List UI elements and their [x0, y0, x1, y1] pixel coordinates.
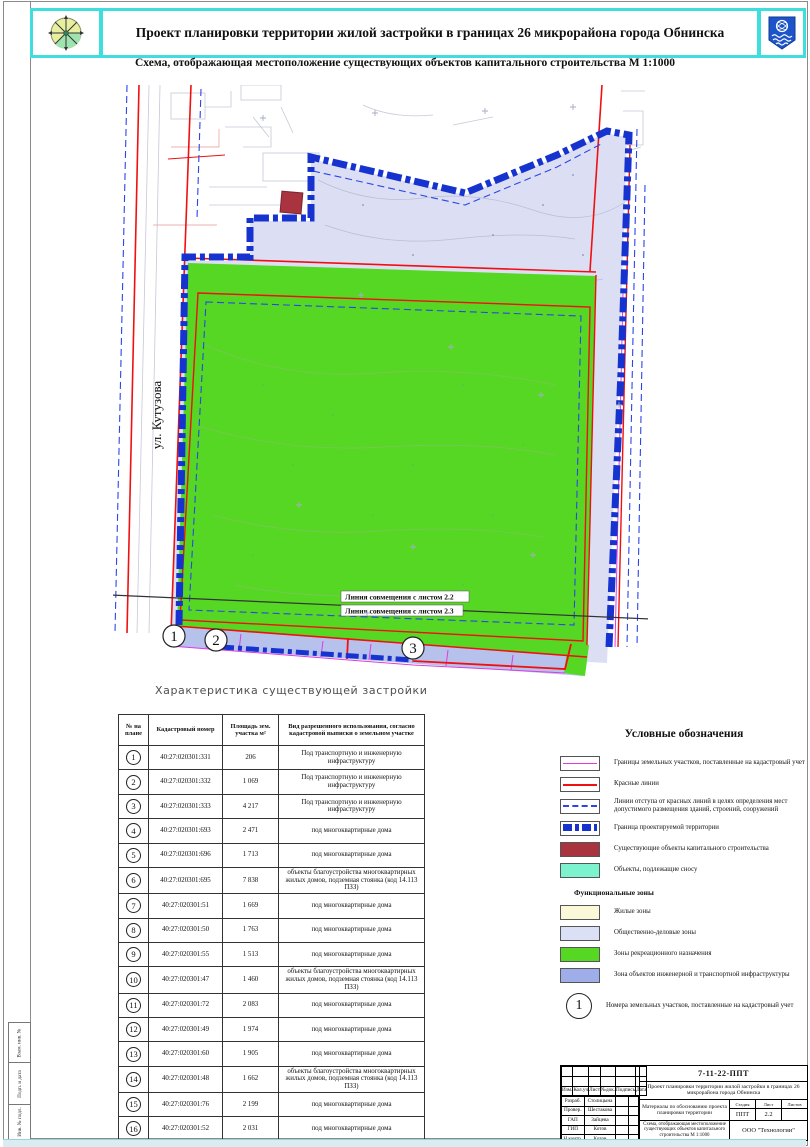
cell-area: 4 217	[223, 794, 279, 818]
legend-zone-item: Зона объектов инженерной и транспортной …	[560, 968, 808, 983]
stamp-col-podpis: Подпись	[616, 1087, 636, 1096]
company-name: ООО "Технологии"	[730, 1121, 807, 1140]
plot-number-badge: 2	[126, 775, 141, 790]
table-row: 4 40:27:020301:693 2 471 под многокварти…	[119, 819, 425, 843]
cell-number: 10	[119, 967, 149, 993]
cell-area: 1 713	[223, 843, 279, 867]
plot-number-badge: 6	[126, 873, 141, 888]
table-row: 8 40:27:020301:50 1 763 под многоквартир…	[119, 918, 425, 942]
legend-item-label: Граница проектируемой территории	[614, 824, 719, 832]
legend-item: Линии отступа от красных линий в целях о…	[560, 798, 808, 815]
table-row: 11 40:27:020301:72 2 083 под многокварти…	[119, 993, 425, 1017]
sheets-label: Листов	[782, 1100, 807, 1108]
sheets-value	[782, 1109, 807, 1119]
cell-use: под многоквартирные дома	[279, 993, 425, 1017]
cell-number: 9	[119, 942, 149, 966]
table-row: 10 40:27:020301:47 1 460 объекты благоус…	[119, 967, 425, 993]
functional-zones-heading: Функциональные зоны	[574, 888, 808, 897]
characteristics-table: № на плане Кадастровый номер Площадь зем…	[118, 714, 425, 1147]
signature-row: Провер. Шестакова	[562, 1106, 639, 1116]
plot-number-badge: 5	[126, 848, 141, 863]
legend-item-label: Линии отступа от красных линий в целях о…	[614, 798, 808, 815]
cell-cadastral: 40:27:020301:52	[149, 1117, 223, 1141]
legend-item-label: Существующие объекты капитального строит…	[614, 845, 769, 853]
cell-use: под многоквартирные дома	[279, 1092, 425, 1116]
table-row: 13 40:27:020301:60 1 905 под многокварти…	[119, 1042, 425, 1066]
role-name: Столицына	[584, 1097, 616, 1107]
role-signature	[616, 1116, 628, 1126]
cell-number: 8	[119, 918, 149, 942]
plot-number-badge: 14	[126, 1072, 141, 1087]
role-name: Котов	[584, 1125, 616, 1135]
role-date	[628, 1097, 638, 1107]
plot-number-badge: 4	[126, 823, 141, 838]
revision-grid: Изм. Кол.уч Лист №док. Подпись Дата	[561, 1066, 647, 1096]
role-signature	[616, 1106, 628, 1116]
cell-area: 2 083	[223, 993, 279, 1017]
cell-cadastral: 40:27:020301:55	[149, 942, 223, 966]
cell-number: 13	[119, 1042, 149, 1066]
cell-number: 16	[119, 1117, 149, 1141]
legend-item: Существующие объекты капитального строит…	[560, 842, 808, 857]
obninsk-emblem	[757, 11, 803, 55]
table-row: 14 40:27:020301:48 1 662 объекты благоус…	[119, 1066, 425, 1092]
stamp-col-list: Лист	[589, 1087, 601, 1096]
cell-cadastral: 40:27:020301:696	[149, 843, 223, 867]
role-signature	[616, 1097, 628, 1107]
document-number: 7-11-22-ППТ	[640, 1066, 807, 1082]
plot-number-badge: 12	[126, 1022, 141, 1037]
cell-number: 12	[119, 1017, 149, 1041]
project-name: Проект планировки территории жилой застр…	[640, 1082, 807, 1101]
scheme-name: Схема, отображающая местоположение сущес…	[640, 1121, 730, 1140]
cell-cadastral: 40:27:020301:60	[149, 1042, 223, 1066]
table-row: 7 40:27:020301:51 1 669 под многоквартир…	[119, 894, 425, 918]
legend-zone-label: Жилые зоны	[614, 908, 651, 916]
legend-item-label: Объекты, подлежащие сносу	[614, 866, 697, 874]
cell-number: 7	[119, 894, 149, 918]
col-header-area: Площадь зем. участка м²	[223, 715, 279, 746]
plot-marker-3: 3	[409, 641, 417, 657]
cell-cadastral: 40:27:020301:332	[149, 770, 223, 794]
signature-row: ГИП Котов	[562, 1125, 639, 1135]
plot-number-badge: 8	[126, 923, 141, 938]
legend-zone-swatch	[560, 968, 600, 983]
cell-cadastral: 40:27:020301:333	[149, 794, 223, 818]
cell-number: 2	[119, 770, 149, 794]
legend-swatch	[560, 756, 600, 771]
legend-title: Условные обозначения	[560, 728, 808, 740]
cell-use: Под транспортную и инженерную инфраструк…	[279, 746, 425, 770]
align-label-2: Линия совмещения с листом 2.3	[345, 607, 454, 616]
legend-number-item: 1 Номера земельных участков, поставленны…	[560, 993, 808, 1019]
drawing-sheet: Проект планировки территории жилой застр…	[0, 0, 810, 1147]
legend-item: Объекты, подлежащие сносу	[560, 863, 808, 878]
table-row: 3 40:27:020301:333 4 217 Под транспортну…	[119, 794, 425, 818]
legend-swatch	[560, 799, 600, 814]
cell-use: под многоквартирные дома	[279, 894, 425, 918]
cell-use: под многоквартирные дома	[279, 843, 425, 867]
sheet-label: Лист	[756, 1100, 782, 1108]
plot-number-badge: 3	[126, 799, 141, 814]
cell-area: 1 763	[223, 918, 279, 942]
role-signature	[616, 1125, 628, 1135]
cell-use: под многоквартирные дома	[279, 918, 425, 942]
plot-number-badge: 9	[126, 947, 141, 962]
cell-area: 2 471	[223, 819, 279, 843]
street-label: ул. Кутузова	[149, 381, 164, 450]
legend-zone-label: Зона объектов инженерной и транспортной …	[614, 971, 790, 979]
cell-area: 1 513	[223, 942, 279, 966]
cell-area: 206	[223, 746, 279, 770]
cell-cadastral: 40:27:020301:47	[149, 967, 223, 993]
stamp-col-dok: №док.	[601, 1087, 616, 1096]
cell-use: Под транспортную и инженерную инфраструк…	[279, 770, 425, 794]
legend-zone-swatch	[560, 926, 600, 941]
role-name: Зайцева	[584, 1116, 616, 1126]
table-row: 12 40:27:020301:49 1 974 под многокварти…	[119, 1017, 425, 1041]
cell-use: под многоквартирные дома	[279, 1117, 425, 1141]
cell-cadastral: 40:27:020301:51	[149, 894, 223, 918]
title-block: Изм. Кол.уч Лист №док. Подпись Дата Разр…	[560, 1065, 808, 1141]
cell-area: 1 460	[223, 967, 279, 993]
cell-use: Под транспортную и инженерную инфраструк…	[279, 794, 425, 818]
cell-number: 3	[119, 794, 149, 818]
role-label: ГИП	[562, 1125, 585, 1135]
plot-number-badge: 7	[126, 898, 141, 913]
scheme-subtitle: Схема, отображающая местоположение сущес…	[130, 57, 680, 71]
stamp-middle-row: Материалы по обоснованию проекта планиро…	[640, 1100, 807, 1120]
cell-cadastral: 40:27:020301:49	[149, 1017, 223, 1041]
role-label: ГАП	[562, 1116, 585, 1126]
table-row: 15 40:27:020301:76 2 199 под многокварти…	[119, 1092, 425, 1116]
cell-number: 6	[119, 867, 149, 893]
table-heading: Характеристика существующей застройки	[155, 684, 428, 697]
cell-use: под многоквартирные дома	[279, 1017, 425, 1041]
page-title: Проект планировки территории жилой застр…	[103, 11, 757, 55]
cell-area: 1 974	[223, 1017, 279, 1041]
side-cell-podp: Подп. и дата	[8, 1062, 31, 1106]
cell-area: 7 838	[223, 867, 279, 893]
plot-number-badge: 10	[126, 972, 141, 987]
table-row: 16 40:27:020301:52 2 031 под многокварти…	[119, 1117, 425, 1141]
site-plan-map: Линия совмещения с листом 2.2 Линия совм…	[113, 85, 648, 683]
cell-cadastral: 40:27:020301:76	[149, 1092, 223, 1116]
legend-zone-swatch	[560, 905, 600, 920]
side-label-vzam: Взам. инв. №	[17, 1028, 23, 1057]
cell-area: 1 905	[223, 1042, 279, 1066]
stamp-col-izm: Изм.	[562, 1087, 573, 1096]
table-row: 9 40:27:020301:55 1 513 под многоквартир…	[119, 942, 425, 966]
compass-logo-icon	[39, 14, 93, 52]
legend-zone-label: Общественно-деловые зоны	[614, 929, 696, 937]
plot-marker-2: 2	[212, 633, 220, 649]
cell-use: под многоквартирные дома	[279, 1042, 425, 1066]
legend-item: Граница проектируемой территории	[560, 821, 808, 836]
cell-cadastral: 40:27:020301:72	[149, 993, 223, 1017]
role-label: Разраб.	[562, 1097, 585, 1107]
legend-number-label: Номера земельных участков, поставленные …	[606, 1002, 793, 1010]
legend-swatch	[560, 842, 600, 857]
plot-number-badge: 11	[126, 998, 141, 1013]
legend-swatch	[560, 777, 600, 792]
col-header-use: Вид разрешенного использования, согласно…	[279, 715, 425, 746]
title-block-signatures: Изм. Кол.уч Лист №док. Подпись Дата Разр…	[561, 1066, 640, 1140]
stage-table: Стадия Лист Листов ППТ 2.2	[730, 1100, 807, 1119]
cell-cadastral: 40:27:020301:48	[149, 1066, 223, 1092]
cell-number: 1	[119, 746, 149, 770]
role-name: Шестакова	[584, 1106, 616, 1116]
side-cell-vzam: Взам. инв. №	[8, 1022, 31, 1064]
side-cell-inv: Инв. № подл.	[8, 1104, 31, 1140]
legend-item-label: Красные линии	[614, 780, 659, 788]
plot-number-badge: 13	[126, 1047, 141, 1062]
compass-logo	[33, 11, 103, 55]
legend-zone-item: Жилые зоны	[560, 905, 808, 920]
cell-number: 11	[119, 993, 149, 1017]
role-date	[628, 1106, 638, 1116]
signature-grid: Разраб. Столицына Провер. Шестакова ГА	[561, 1096, 639, 1145]
cell-cadastral: 40:27:020301:331	[149, 746, 223, 770]
plot-number-badge: 16	[126, 1121, 141, 1136]
stamp-bottom-row: Схема, отображающая местоположение сущес…	[640, 1121, 807, 1140]
stage-value: ППТ	[730, 1109, 756, 1119]
col-header-number: № на плане	[119, 715, 149, 746]
cell-use: объекты благоустройства многоквартирных …	[279, 867, 425, 893]
legend-swatch	[560, 821, 600, 836]
cell-number: 15	[119, 1092, 149, 1116]
stamp-col-koluch: Кол.уч	[573, 1087, 589, 1096]
cell-area: 2 199	[223, 1092, 279, 1116]
side-label-podp: Подп. и дата	[17, 1070, 23, 1098]
header-bar: Проект планировки территории жилой застр…	[30, 8, 806, 58]
cell-use: объекты благоустройства многоквартирных …	[279, 967, 425, 993]
table-row: 6 40:27:020301:695 7 838 объекты благоус…	[119, 867, 425, 893]
cell-number: 4	[119, 819, 149, 843]
plot-marker-1: 1	[170, 629, 178, 645]
signature-row: ГАП Зайцева	[562, 1116, 639, 1126]
obninsk-emblem-icon	[768, 16, 796, 50]
legend-zone-item: Зоны рекреационного назначения	[560, 947, 808, 962]
cell-use: под многоквартирные дома	[279, 942, 425, 966]
signature-row: Разраб. Столицына	[562, 1097, 639, 1107]
cell-use: объекты благоустройства многоквартирных …	[279, 1066, 425, 1092]
legend-swatch	[560, 863, 600, 878]
cell-number: 5	[119, 843, 149, 867]
legend: Условные обозначения Границы земельных у…	[560, 728, 808, 1019]
cell-area: 1 662	[223, 1066, 279, 1092]
align-label-1: Линия совмещения с листом 2.2	[345, 593, 454, 602]
legend-zone-label: Зоны рекреационного назначения	[614, 950, 712, 958]
cell-use: под многоквартирные дома	[279, 819, 425, 843]
plot-number-badge: 15	[126, 1097, 141, 1112]
title-block-info: 7-11-22-ППТ Проект планировки территории…	[640, 1066, 807, 1140]
legend-item: Границы земельных участков, поставленные…	[560, 756, 808, 771]
cell-area: 1 669	[223, 894, 279, 918]
plot-number-symbol: 1	[566, 993, 592, 1019]
cell-number: 14	[119, 1066, 149, 1092]
stage-label: Стадия	[730, 1100, 756, 1108]
cell-area: 2 031	[223, 1117, 279, 1141]
bottom-band	[3, 1139, 806, 1147]
cell-cadastral: 40:27:020301:693	[149, 819, 223, 843]
materials-label: Материалы по обоснованию проекта планиро…	[640, 1100, 730, 1119]
existing-building-mark	[280, 191, 303, 214]
plot-number-badge: 1	[126, 750, 141, 765]
cell-area: 1 069	[223, 770, 279, 794]
cell-cadastral: 40:27:020301:695	[149, 867, 223, 893]
legend-zone-swatch	[560, 947, 600, 962]
cell-cadastral: 40:27:020301:50	[149, 918, 223, 942]
legend-item: Красные линии	[560, 777, 808, 792]
sheet-value: 2.2	[756, 1109, 782, 1119]
table-row: 2 40:27:020301:332 1 069 Под транспортну…	[119, 770, 425, 794]
col-header-cadastral: Кадастровый номер	[149, 715, 223, 746]
table-row: 1 40:27:020301:331 206 Под транспортную …	[119, 746, 425, 770]
legend-item-label: Границы земельных участков, поставленные…	[614, 759, 805, 767]
legend-zone-item: Общественно-деловые зоны	[560, 926, 808, 941]
table-row: 5 40:27:020301:696 1 713 под многокварти…	[119, 843, 425, 867]
role-date	[628, 1125, 638, 1135]
role-label: Провер.	[562, 1106, 585, 1116]
side-label-inv: Инв. № подл.	[17, 1107, 23, 1137]
role-date	[628, 1116, 638, 1126]
